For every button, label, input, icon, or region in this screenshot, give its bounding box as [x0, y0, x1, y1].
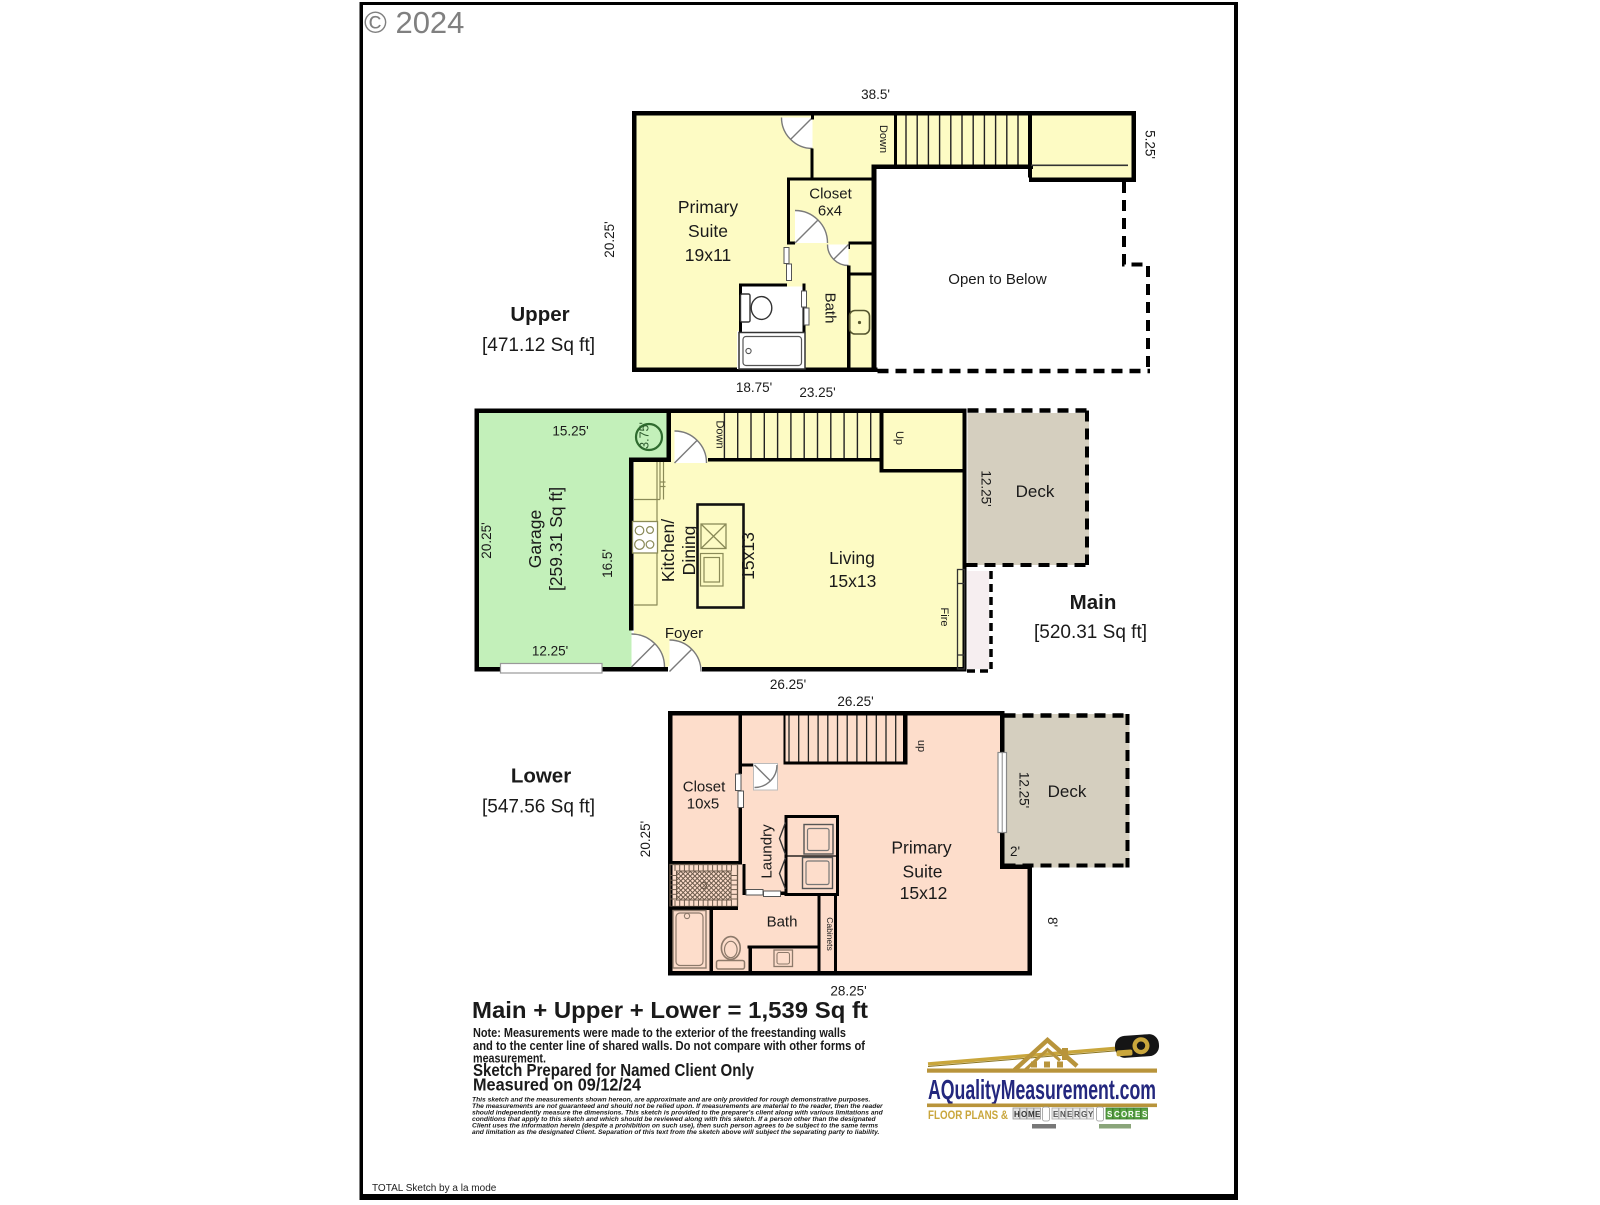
svg-text:E: E [1053, 1110, 1059, 1119]
svg-text:N: N [1060, 1110, 1066, 1119]
svg-text:Kitchen/Dining: Kitchen/Dining [658, 519, 699, 582]
svg-text:12.25': 12.25' [532, 644, 568, 659]
svg-text:20.25': 20.25' [602, 221, 617, 257]
svg-text:R: R [1074, 1110, 1080, 1119]
svg-text:[547.56 Sq ft]: [547.56 Sq ft] [482, 797, 595, 818]
svg-text:TOTAL Sketch by a la mode: TOTAL Sketch by a la mode [372, 1183, 497, 1194]
svg-text:16.5': 16.5' [600, 549, 615, 578]
svg-text:12.25': 12.25' [1017, 772, 1032, 808]
svg-text:O: O [1021, 1110, 1027, 1119]
svg-text:Suite: Suite [903, 862, 943, 882]
svg-text:12.25': 12.25' [979, 470, 994, 506]
svg-text:19x11: 19x11 [685, 245, 731, 265]
svg-text:Closet: Closet [683, 779, 726, 796]
svg-text:[520.31 Sq ft]: [520.31 Sq ft] [1034, 622, 1147, 643]
svg-text:S: S [1142, 1110, 1148, 1119]
svg-text:20.25': 20.25' [479, 522, 494, 558]
svg-text:Deck: Deck [1048, 782, 1087, 801]
svg-text:15x13: 15x13 [829, 571, 877, 591]
svg-text:Laundry: Laundry [759, 824, 776, 879]
svg-text:up: up [915, 740, 927, 752]
svg-text:Bath: Bath [822, 293, 839, 324]
svg-text:Living: Living [829, 548, 875, 568]
svg-text:15.25': 15.25' [552, 424, 588, 439]
svg-text:Suite: Suite [688, 221, 728, 241]
svg-text:26.25': 26.25' [770, 677, 806, 692]
svg-text:E: E [1035, 1110, 1041, 1119]
svg-text:FLOOR PLANS &: FLOOR PLANS & [928, 1110, 1008, 1122]
svg-text:8': 8' [1045, 917, 1060, 927]
svg-text:O: O [1121, 1110, 1127, 1119]
svg-text:Down: Down [877, 125, 889, 153]
svg-text:Up: Up [893, 431, 905, 445]
svg-text:Open to Below: Open to Below [948, 271, 1047, 288]
svg-text:Fire: Fire [938, 608, 950, 627]
svg-text:and limitation as the designat: and limitation as the designated Client.… [472, 1129, 880, 1136]
svg-text:23.25': 23.25' [799, 385, 835, 400]
svg-text:Primary: Primary [891, 838, 952, 858]
svg-text:Main: Main [1070, 591, 1117, 614]
svg-text:Deck: Deck [1016, 482, 1055, 501]
svg-text:R: R [1128, 1110, 1134, 1119]
svg-text:18.75': 18.75' [736, 380, 772, 395]
svg-text:38.5': 38.5' [861, 87, 890, 102]
svg-text:Primary: Primary [678, 197, 739, 217]
svg-text:E: E [1067, 1110, 1073, 1119]
svg-text:© 2024: © 2024 [364, 5, 464, 40]
svg-text:15x12: 15x12 [900, 883, 948, 903]
svg-text:20.25': 20.25' [638, 821, 653, 857]
svg-text:Upper: Upper [510, 303, 569, 326]
svg-text:Main + Upper + Lower = 1,539 S: Main + Upper + Lower = 1,539 Sq ft [472, 997, 868, 1023]
svg-text:[471.12 Sq ft]: [471.12 Sq ft] [482, 335, 595, 356]
svg-text:Measured on 09/12/24: Measured on 09/12/24 [473, 1075, 641, 1095]
svg-text:G: G [1081, 1110, 1087, 1119]
svg-text:M: M [1028, 1110, 1035, 1119]
svg-text:3.75': 3.75' [638, 422, 652, 449]
svg-text:Cabinets: Cabinets [825, 917, 835, 951]
svg-text:10x5: 10x5 [687, 796, 720, 813]
svg-text:6x4: 6x4 [818, 203, 842, 220]
svg-text:H: H [1014, 1110, 1020, 1119]
svg-text:AQualityMeasurement.com: AQualityMeasurement.com [928, 1074, 1156, 1105]
svg-text:Closet: Closet [809, 186, 852, 203]
svg-text:C: C [1114, 1110, 1120, 1119]
svg-text:S: S [1107, 1110, 1113, 1119]
svg-text:Bath: Bath [767, 914, 798, 931]
svg-text:Y: Y [1088, 1110, 1094, 1119]
svg-text:Down: Down [714, 420, 726, 448]
svg-text:Foyer: Foyer [665, 625, 703, 642]
svg-text:15x13: 15x13 [738, 532, 758, 580]
svg-text:2': 2' [1010, 844, 1020, 859]
svg-text:5.25': 5.25' [1143, 130, 1158, 159]
svg-text:26.25': 26.25' [837, 694, 873, 709]
svg-text:E: E [1135, 1110, 1141, 1119]
svg-text:Lower: Lower [511, 765, 571, 788]
